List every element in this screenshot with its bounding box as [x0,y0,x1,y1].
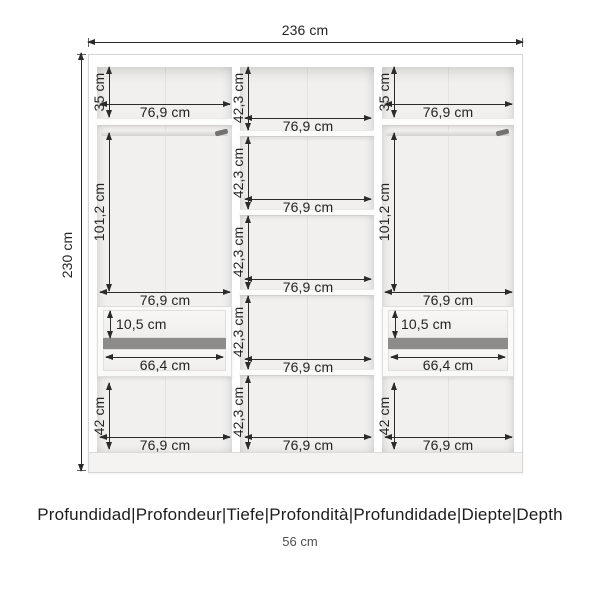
dim-left-hanging-height-line [109,133,110,291]
dim-right-bottom-height-line [394,383,395,449]
overall-height-bottom-tick [77,470,86,471]
dim-left-bottom-width-label: 76,9 cm [140,437,191,453]
dim-right-top-height-line [394,67,395,117]
dim-left-hanging-height-label: 101,2 cm [91,183,107,241]
dim-left-top-width-label: 76,9 cm [140,104,191,120]
dim-right-hanging-height-line [394,133,395,291]
dim-left-drawer-height-label: 10,5 cm [116,316,167,332]
dim-left-top-height-line [109,67,110,117]
dim-middle-s3-height-label: 42,3 cm [230,227,246,278]
dim-left-drawer-width-label: 66,4 cm [140,357,191,373]
dim-right-drawer-height-line [395,311,396,338]
dim-right-bottom-height-label: 42 cm [376,397,392,436]
dim-right-top-width-label: 76,9 cm [423,104,474,120]
dim-middle-s1-width-label: 76,9 cm [283,118,334,134]
left-hanging-rail [101,131,228,136]
overall-height-label: 230 cm [59,232,75,279]
footer-depth-languages: Profundidad|Profondeur|Tiefe|Profondità|… [0,505,600,525]
dim-left-hanging-width-label: 76,9 cm [140,292,191,308]
left-drawer-gap [103,338,226,349]
dim-left-drawer-height-line [110,311,111,338]
dim-left-bottom-height-line [109,383,110,449]
dim-middle-s2-width-label: 76,9 cm [283,199,334,215]
dim-left-bottom-height-label: 42 cm [91,397,107,436]
dim-middle-s4-height-label: 42,3 cm [230,307,246,358]
dim-right-hanging-width-label: 76,9 cm [423,292,474,308]
dim-middle-s5-width-label: 76,9 cm [283,437,334,453]
overall-width-label: 236 cm [282,22,329,38]
footer-depth-value: 56 cm [0,534,600,549]
dim-middle-s5-height-label: 42,3 cm [230,387,246,438]
dim-right-drawer-height-label: 10,5 cm [401,316,452,332]
overall-height-top-tick [77,54,86,55]
overall-width-left-tick [88,38,89,47]
dim-right-drawer-width-label: 66,4 cm [423,357,474,373]
dim-middle-s3-width-label: 76,9 cm [283,279,334,295]
wardrobe-diagram: 236 cm 230 cm 35 cm 76,9 cm 101,2 cm 76,… [0,0,600,600]
dim-right-bottom-width-label: 76,9 cm [423,437,474,453]
dim-middle-s4-width-label: 76,9 cm [283,359,334,375]
overall-height-dimension-line [81,53,82,471]
dim-right-hanging-height-label: 101,2 cm [376,183,392,241]
dim-middle-s2-height-label: 42,3 cm [230,148,246,199]
right-drawer-gap [388,338,508,349]
overall-width-dimension-line [88,42,523,43]
overall-width-right-tick [522,38,523,47]
cabinet-base [89,452,522,472]
right-hanging-rail [386,131,510,136]
